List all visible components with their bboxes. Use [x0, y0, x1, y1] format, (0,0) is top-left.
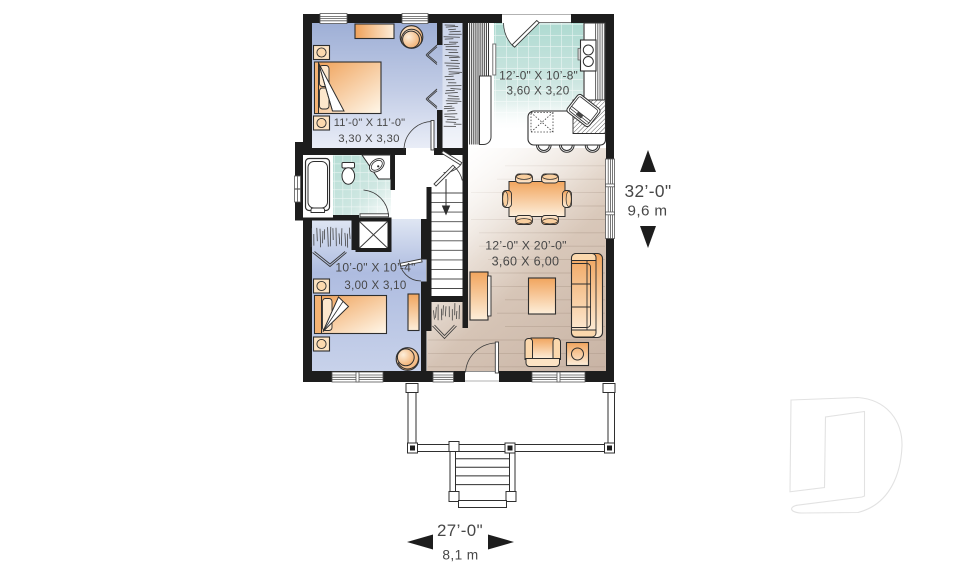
svg-text:32’-0": 32’-0" — [625, 181, 672, 201]
svg-text:3,60 X 3,20: 3,60 X 3,20 — [506, 85, 569, 98]
svg-text:12’-0" X 10’-8": 12’-0" X 10’-8" — [499, 69, 578, 83]
svg-text:11’-0" X 11’-0": 11’-0" X 11’-0" — [334, 117, 406, 129]
svg-text:3,30 X 3,30: 3,30 X 3,30 — [338, 133, 400, 145]
svg-text:3,00 X 3,10: 3,00 X 3,10 — [344, 280, 406, 292]
svg-text:3,60 X 6,00: 3,60 X 6,00 — [492, 255, 560, 269]
svg-text:8,1 m: 8,1 m — [442, 548, 478, 563]
svg-text:9,6 m: 9,6 m — [628, 203, 668, 220]
svg-text:12’-0" X 20’-0": 12’-0" X 20’-0" — [485, 239, 566, 253]
svg-text:10’-0" X 10’-4": 10’-0" X 10’-4" — [335, 261, 415, 275]
svg-text:27’-0": 27’-0" — [437, 521, 483, 540]
